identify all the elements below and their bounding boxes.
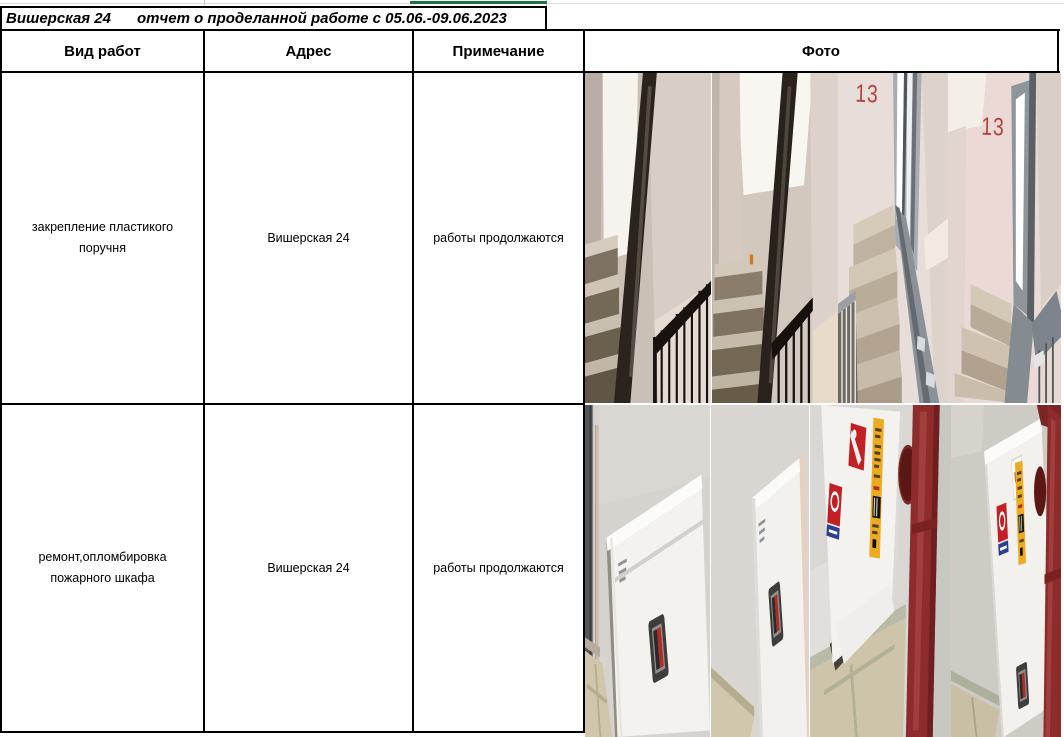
cell-work-row2[interactable]: ремонт,опломбировка пожарного шкафа	[2, 405, 203, 731]
title-building: Вишерская 24	[6, 6, 111, 31]
photo-fire-cabinet-1[interactable]	[585, 405, 710, 737]
cell-address-row2[interactable]: Вишерская 24	[205, 405, 412, 731]
photo-fire-cabinet-stickers-2[interactable]	[951, 405, 1061, 737]
column-header-work[interactable]: Вид работ	[2, 31, 203, 71]
cell-note-row2[interactable]: работы продолжаются	[414, 405, 583, 731]
cell-text: работы продолжаются	[424, 228, 574, 249]
border-line	[1057, 29, 1059, 73]
cell-text: ремонт,опломбировка пожарного шкафа	[20, 547, 185, 589]
cell-text: закрепление пластикого поручня	[20, 217, 185, 259]
column-header-photo[interactable]: Фото	[585, 31, 1057, 71]
cell-text: Вишерская 24	[267, 228, 349, 249]
selection-border	[410, 1, 547, 4]
cell-text: Вишерская 24	[267, 558, 349, 579]
floor-number-label: 13	[855, 79, 879, 109]
photo-strip-row1: 13 13	[585, 73, 1061, 403]
photo-stairwell-floor13-1[interactable]: 13	[838, 73, 948, 403]
spreadsheet-report-page: Вишерская 24 отчет о проделанной работе …	[0, 0, 1064, 737]
column-header-label: Примечание	[453, 43, 545, 60]
cell-address-row1[interactable]: Вишерская 24	[205, 73, 412, 403]
column-header-label: Вид работ	[64, 43, 141, 60]
column-header-note[interactable]: Примечание	[414, 31, 583, 71]
photo-fire-cabinet-2[interactable]	[711, 405, 809, 737]
column-header-label: Фото	[802, 43, 840, 60]
title-cell[interactable]: Вишерская 24 отчет о проделанной работе …	[0, 6, 547, 31]
cell-note-row1[interactable]: работы продолжаются	[414, 73, 583, 403]
border-line	[545, 6, 547, 31]
cell-text: работы продолжаются	[424, 558, 574, 579]
border-line	[0, 6, 547, 8]
column-header-address[interactable]: Адрес	[205, 31, 412, 71]
photo-stairwell-2[interactable]	[712, 73, 838, 403]
border-line	[0, 731, 585, 733]
photo-strip-row2	[585, 405, 1061, 737]
title-report: отчет о проделанной работе с 05.06.-09.0…	[137, 6, 507, 31]
photo-stairwell-1[interactable]	[585, 73, 711, 403]
column-header-label: Адрес	[285, 43, 331, 60]
floor-number-label: 13	[981, 112, 1005, 142]
photo-fire-cabinet-stickers-1[interactable]	[810, 405, 951, 737]
cell-work-row1[interactable]: закрепление пластикого поручня	[2, 73, 203, 403]
photo-stairwell-floor13-2[interactable]: 13	[948, 73, 1061, 403]
